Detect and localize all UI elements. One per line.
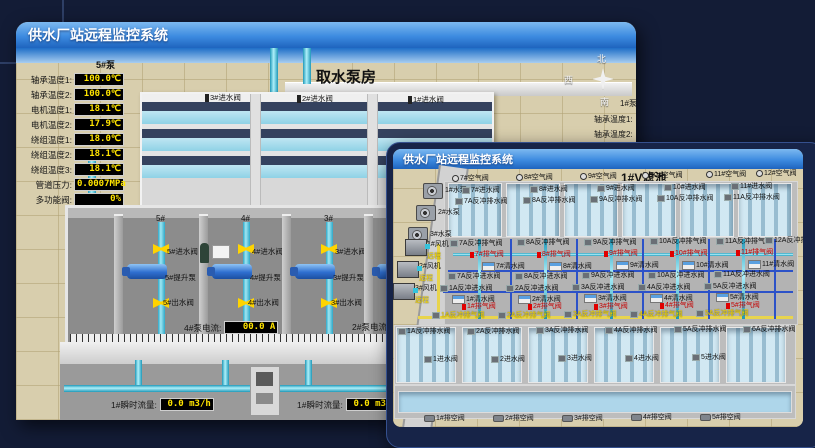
panel-row-label: 绕组温度1: — [26, 134, 72, 146]
blower-icon — [397, 261, 419, 278]
valve-icon — [648, 272, 656, 279]
pump-current-readout: 2#泵电流: — [352, 321, 389, 333]
backwash-inlet-valve[interactable]: 3A反冲进水阀 — [572, 284, 625, 291]
backwash-drain-valve[interactable]: 6A反冲排水阀 — [743, 326, 796, 333]
panel-row-label: 电机温度1: — [26, 104, 72, 116]
inlet-valve[interactable]: 11#进水阀 — [731, 183, 772, 190]
closed-valve-icon — [470, 252, 474, 258]
closed-valve-icon — [670, 251, 674, 257]
inlet-valve[interactable]: 1进水阀 — [424, 356, 458, 363]
valve-icon — [517, 239, 525, 246]
vent-valve[interactable]: 2#排气阀 — [528, 303, 562, 310]
vent-valve[interactable]: 7#排气阀 — [470, 251, 504, 258]
valve-icon — [716, 238, 724, 245]
pump-fan-icon — [423, 183, 443, 199]
vent-valve[interactable]: 9#排气阀 — [604, 250, 638, 257]
backwash-drain-valve[interactable]: 9A反冲排水阀 — [590, 196, 643, 203]
blower[interactable]: 3#风机 远程 — [393, 283, 437, 305]
vent-valve[interactable]: 1#排气阀 — [462, 303, 496, 310]
valve-icon — [572, 284, 580, 291]
vent-valve[interactable]: 3#排气阀 — [594, 303, 628, 310]
operator-figure — [200, 243, 209, 263]
outlet-stub-pipe — [305, 360, 312, 388]
standpipe — [303, 48, 311, 84]
backwash-drain-valve[interactable]: 8A反冲排水阀 — [523, 197, 576, 204]
valve-icon — [398, 328, 406, 335]
inlet-valve[interactable]: 10#进水阀 — [664, 184, 706, 191]
panel-row-value: 18.1℃ — [74, 148, 124, 161]
backwash-inlet-valve[interactable]: 5A反冲进水阀 — [704, 283, 757, 290]
blower-status: 远程 — [415, 295, 437, 305]
inlet-valve-label[interactable]: 1#进水阀 — [408, 96, 444, 104]
backwash-inlet-valve[interactable]: 2A反冲进水阀 — [506, 285, 559, 292]
pump-riser-pipe — [326, 222, 333, 340]
panel-row-label: 轴承温度2: — [26, 89, 72, 101]
valve-icon — [650, 238, 658, 245]
front-window-titlebar[interactable]: 供水厂站远程监控系统 — [393, 149, 803, 169]
air-valve-icon — [642, 172, 649, 179]
valve-icon — [638, 284, 646, 291]
air-valve[interactable]: 12#空气阀 — [756, 170, 797, 177]
pump-fan-icon — [416, 205, 436, 221]
pump-label: 3#水泵 — [430, 229, 452, 239]
valve-icon — [590, 196, 598, 203]
backwash-drain-valve[interactable]: 5A反冲排水阀 — [674, 326, 727, 333]
panel-row-value: 100.0℃ — [74, 73, 124, 86]
closed-valve-icon — [594, 304, 598, 310]
blower-icon — [393, 283, 415, 300]
filter-cell-12[interactable] — [738, 183, 792, 237]
backwash-inlet-valve[interactable]: 1A反冲进水阀 — [440, 285, 493, 292]
valve-icon — [467, 328, 475, 335]
backwash-drain-valve[interactable]: 2A反冲排水阀 — [467, 328, 520, 335]
gallery-riser — [708, 239, 710, 319]
air-valve[interactable]: 10#空气阀 — [642, 172, 683, 179]
backwash-air-valve[interactable]: 11A反冲排气阀 — [716, 238, 772, 245]
backwash-inlet-valve[interactable]: 10A反冲进水阀 — [648, 272, 704, 279]
valve-icon — [515, 273, 523, 280]
back-window-title: 供水厂站远程监控系统 — [28, 25, 168, 45]
gate-valve-icon — [205, 94, 209, 102]
flow-meter-display — [256, 372, 273, 386]
compass-west: 西 — [564, 73, 573, 86]
backwash-inlet-valve[interactable]: 4A反冲进水阀 — [638, 284, 691, 291]
water-tank-icon — [748, 260, 761, 269]
standpipe — [270, 48, 278, 94]
basin-column — [250, 94, 261, 207]
vent-valve[interactable]: 11#排气阀 — [736, 249, 773, 256]
control-cabinet — [212, 245, 230, 259]
valve-icon — [536, 327, 544, 334]
backwash-drain-valve[interactable]: 10A反冲排水阀 — [657, 195, 713, 202]
valve-icon — [731, 183, 739, 190]
outlet-stub-pipe — [135, 360, 142, 388]
pump-house-scene-title: 取水泵房 — [316, 66, 376, 87]
valve-icon — [450, 240, 458, 247]
closed-valve-icon — [726, 303, 730, 309]
valve-icon — [582, 272, 590, 279]
panel-row-label: 绕组温度2: — [26, 149, 72, 161]
pump-label: 5#提升泵 — [165, 272, 196, 283]
flow-meter-body — [256, 393, 273, 404]
filter-pool-scene: 1#V滤池 — [393, 169, 803, 427]
drain-valve[interactable]: 1#排空阀 — [424, 415, 465, 422]
lift-pump-body[interactable] — [212, 264, 252, 279]
valve-icon — [674, 326, 682, 333]
water-tank-icon — [716, 293, 729, 302]
inlet-valve[interactable]: 9#进水阀 — [597, 185, 635, 192]
compass-north: 北 — [597, 52, 606, 65]
backwash-air-valve[interactable]: 10A反冲排气阀 — [650, 238, 706, 245]
panel-row-value: 18.0℃ — [74, 133, 124, 146]
inlet-valve[interactable]: 2进水阀 — [491, 356, 525, 363]
valve-icon — [714, 271, 722, 278]
backwash-air-valve[interactable]: 9A反冲排气阀 — [584, 239, 637, 246]
valve-icon — [530, 186, 538, 193]
gallery-riser — [510, 239, 512, 319]
valve-icon — [584, 239, 592, 246]
panel-row-label: 电机温度2: — [26, 119, 72, 131]
inlet-valve-label: 5#进水阀 — [167, 246, 198, 257]
air-valve[interactable]: 7#空气阀 — [452, 175, 489, 182]
closed-valve-icon — [660, 303, 664, 309]
outlet-valve-label: 5#出水阀 — [163, 297, 194, 308]
valve-icon — [523, 197, 531, 204]
backwash-air-valve[interactable]: 12A反冲排气阀 — [765, 237, 803, 244]
inlet-valve[interactable]: 8#进水阀 — [530, 186, 568, 193]
panel-row-label: 管道压力: — [26, 179, 72, 191]
pump-label: 3#提升泵 — [333, 272, 364, 283]
readout-label: 2#泵电流: — [352, 321, 389, 333]
drain-valve-icon — [424, 415, 435, 422]
valve-icon — [743, 326, 751, 333]
valve-icon — [448, 273, 456, 280]
pump-label: 2#水泵 — [438, 207, 460, 217]
valve-icon — [564, 311, 572, 318]
backwash-air-valve[interactable]: 2A反冲排气阀 — [498, 312, 551, 319]
gallery-riser — [576, 239, 578, 319]
air-valve-icon — [452, 175, 459, 182]
valve-icon — [625, 355, 633, 362]
blower[interactable]: 1#风机 远程 — [405, 239, 449, 261]
clean-water-valve[interactable]: 7#清水阀 — [482, 262, 525, 271]
outlet-valve-label: 3#出水阀 — [331, 297, 362, 308]
lift-pump-body[interactable] — [127, 264, 167, 279]
basin-channel — [142, 129, 492, 138]
filter-cell-1[interactable] — [396, 327, 456, 383]
valve-icon — [597, 185, 605, 192]
basin-column — [367, 94, 378, 207]
drain-valve[interactable]: 3#排空阀 — [562, 415, 603, 422]
desktop: { "colors": { "background": "#131c36", "… — [0, 0, 815, 420]
inlet-valve[interactable]: 5进水阀 — [692, 354, 726, 361]
panel-row-label: 轴承温度1: — [26, 74, 72, 86]
backwash-inlet-valve[interactable]: 7A反冲进水阀 — [448, 273, 501, 280]
side-label: 轴承温度2: — [594, 129, 633, 140]
pump-label: 4#提升泵 — [250, 272, 281, 283]
flow-meter[interactable] — [250, 366, 280, 416]
clean-water-valve[interactable]: 11#清水阀 — [748, 260, 794, 269]
valve-icon — [498, 312, 506, 319]
clean-water-valve[interactable]: 9#清水阀 — [616, 261, 659, 270]
air-valve[interactable]: 9#空气阀 — [580, 173, 617, 180]
compass-south: 南 — [600, 95, 609, 108]
readout-value: 0.0 m3/h — [160, 398, 214, 411]
pump-current-readout: 4#泵电流: 00.0 A — [184, 321, 278, 334]
drain-valve[interactable]: 2#排空阀 — [493, 415, 534, 422]
clean-water-valve[interactable]: 5#清水阀 — [716, 293, 759, 302]
clean-water-valve[interactable]: 10#清水阀 — [682, 261, 729, 270]
backwash-air-valve[interactable]: 5A反冲排气阀 — [696, 310, 749, 317]
backwash-inlet-valve[interactable]: 8A反冲进水阀 — [515, 273, 568, 280]
blower-label: 1#风机 — [427, 239, 449, 249]
valve-icon — [424, 356, 432, 363]
air-valve-icon — [580, 173, 587, 180]
closed-valve-icon — [537, 252, 541, 258]
backwash-air-valve[interactable]: 3A反冲排气阀 — [564, 311, 617, 318]
front-window-title: 供水厂站远程监控系统 — [403, 151, 513, 167]
valve-icon — [657, 195, 665, 202]
valve-icon — [455, 198, 463, 205]
backwash-pump[interactable]: 1#水泵 — [423, 183, 467, 199]
pump-panel-header: 5#泵 — [96, 58, 115, 71]
vent-valve[interactable]: 10#排气阀 — [670, 250, 708, 257]
panel-row-value: 17.9℃ — [74, 118, 124, 131]
inlet-valve-label[interactable]: 2#进水阀 — [297, 95, 333, 103]
gate-valve-icon — [297, 95, 301, 103]
clean-water-valve[interactable]: 8#清水阀 — [549, 262, 592, 271]
valve-icon — [506, 285, 514, 292]
closed-valve-icon — [462, 304, 466, 310]
inlet-valve-label: 4#进水阀 — [252, 246, 283, 257]
vent-valve[interactable]: 5#排气阀 — [726, 302, 760, 309]
drain-valve-icon — [562, 415, 573, 422]
valve-icon — [696, 310, 704, 317]
clean-water-valve[interactable]: 3#清水阀 — [584, 294, 627, 303]
outlet-stub-pipe — [222, 360, 229, 388]
gallery-riser — [642, 239, 644, 319]
backwash-drain-valve[interactable]: 11A反冲排水阀 — [724, 194, 780, 201]
panel-row-value: 100.0℃ — [74, 88, 124, 101]
blower-status: 远程 — [419, 273, 441, 283]
panel-row-value: 0.0007MPa — [74, 178, 124, 191]
closed-valve-icon — [736, 250, 740, 256]
backwash-drain-valve[interactable]: 7A反冲排水阀 — [455, 198, 508, 205]
backwash-drain-valve[interactable]: 1A反冲排水阀 — [398, 328, 451, 335]
filter-window-inner: 供水厂站远程监控系统 1#V滤池 — [393, 149, 803, 427]
drain-valve-icon — [493, 415, 504, 422]
inlet-valve[interactable]: 3进水阀 — [558, 355, 592, 362]
inlet-valve-label[interactable]: 3#进水阀 — [205, 94, 241, 102]
blower-icon — [405, 239, 427, 256]
valve-icon — [692, 354, 700, 361]
valve-icon — [440, 285, 448, 292]
compass-star-icon — [592, 68, 614, 90]
water-tank-icon — [682, 261, 695, 270]
window-filter-pool: 供水厂站远程监控系统 1#V滤池 — [386, 142, 815, 448]
outlet-main-pipe — [64, 385, 408, 392]
back-window-titlebar[interactable]: 供水厂站远程监控系统 — [16, 22, 636, 48]
backwash-drain-valve[interactable]: 3A反冲排水阀 — [536, 327, 589, 334]
flow-readout: 1#瞬时流量: 0.0 m3/h — [111, 398, 214, 411]
valve-icon — [462, 187, 470, 194]
water-tank-icon — [549, 262, 562, 271]
vent-valve[interactable]: 8#排气阀 — [537, 251, 571, 258]
flow-readout: 1#瞬时流量: 0.0 m3/h — [297, 398, 400, 411]
closed-valve-icon — [604, 251, 608, 257]
closed-valve-icon — [528, 304, 532, 310]
drain-channel-water — [398, 391, 792, 413]
air-valve[interactable]: 11#空气阀 — [706, 171, 746, 178]
panel-row-label: 绕组温度3: — [26, 164, 72, 176]
valve-icon — [765, 237, 773, 244]
readout-value: 00.0 A — [224, 321, 278, 334]
backwash-pump[interactable]: 2#水泵 — [416, 205, 460, 221]
readout-label: 4#泵电流: — [184, 322, 221, 334]
panel-row-value: 18.1℃ — [74, 163, 124, 176]
blower-label: 3#风机 — [415, 283, 437, 293]
side-label: 1#泵 — [620, 98, 636, 109]
air-valve-icon — [706, 171, 713, 178]
valve-icon — [432, 312, 440, 319]
water-tank-icon — [616, 261, 629, 270]
valve-icon — [724, 194, 732, 201]
backwash-air-valve[interactable]: 1A反冲排气阀 — [432, 312, 485, 319]
valve-icon — [605, 327, 613, 334]
filter-cell-11[interactable] — [680, 183, 734, 237]
readout-label: 1#瞬时流量: — [111, 399, 157, 411]
backwash-air-valve[interactable]: 8A反冲排气阀 — [517, 239, 570, 246]
valve-icon — [558, 355, 566, 362]
vent-valve[interactable]: 4#排气阀 — [660, 302, 694, 309]
filter-cell-2[interactable] — [462, 327, 522, 383]
valve-icon — [630, 311, 638, 318]
inlet-valve[interactable]: 4进水阀 — [625, 355, 659, 362]
gate-valve-icon — [408, 96, 412, 104]
valve-icon — [491, 356, 499, 363]
air-valve[interactable]: 8#空气阀 — [516, 174, 553, 181]
air-valve-icon — [756, 170, 763, 177]
gallery-riser — [774, 239, 776, 319]
backwash-air-valve[interactable]: 7A反冲排气阀 — [450, 240, 503, 247]
pump-riser-pipe — [158, 222, 165, 340]
backwash-inlet-valve[interactable]: 11A反冲进水阀 — [714, 271, 770, 278]
filter-cell-6[interactable] — [726, 327, 786, 383]
backwash-air-valve[interactable]: 4A反冲排气阀 — [630, 311, 683, 318]
blower-status: 远程 — [427, 251, 449, 261]
blower-label: 2#风机 — [419, 261, 441, 271]
basin-water — [142, 111, 492, 124]
blower[interactable]: 2#风机 远程 — [397, 261, 441, 283]
backwash-inlet-valve[interactable]: 9A反冲进水阀 — [582, 272, 635, 279]
outlet-valve-label: 4#出水阀 — [248, 297, 279, 308]
side-label: 轴承温度1: — [594, 114, 633, 125]
water-tank-icon — [584, 294, 597, 303]
air-valve-icon — [516, 174, 523, 181]
backwash-drain-valve[interactable]: 4A反冲排水阀 — [605, 327, 658, 334]
inlet-valve[interactable]: 7#进水阀 — [462, 187, 500, 194]
inlet-valve-label: 3#进水阀 — [335, 246, 366, 257]
water-tank-icon — [482, 262, 495, 271]
valve-icon — [704, 283, 712, 290]
readout-label: 1#瞬时流量: — [297, 399, 343, 411]
valve-icon — [664, 184, 672, 191]
lift-pump-body[interactable] — [295, 264, 335, 279]
panel-row-value: 18.1℃ — [74, 103, 124, 116]
